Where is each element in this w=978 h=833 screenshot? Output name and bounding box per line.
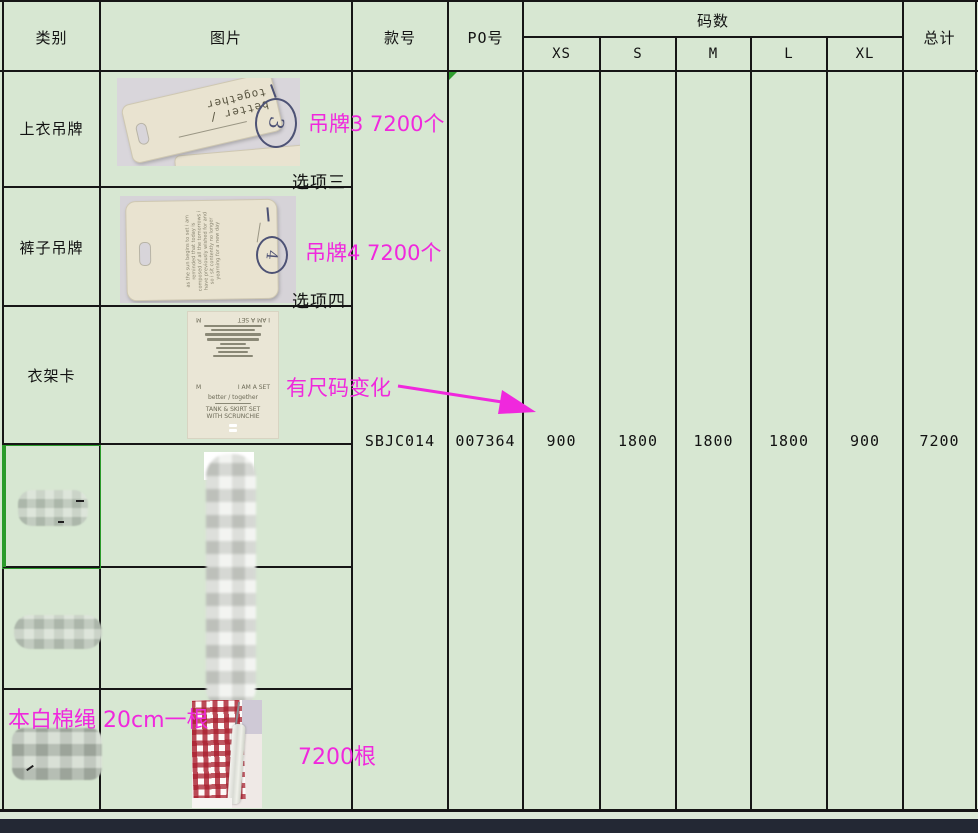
option-label-4: 选项四	[292, 287, 346, 312]
photo-redacted-strip[interactable]	[206, 454, 256, 710]
grid-line	[0, 0, 978, 2]
handwritten-circled-3: 3	[255, 98, 297, 148]
grid-line	[0, 809, 978, 812]
header-cell-sizes-group[interactable]: 码数	[524, 4, 902, 36]
data-cell-qty-m[interactable]: 1800	[677, 71, 750, 811]
grid-line	[975, 0, 977, 811]
grid-line	[2, 0, 4, 811]
grid-line	[447, 0, 449, 811]
header-cell-category[interactable]: 类别	[4, 4, 99, 70]
header-cell-total[interactable]: 总计	[904, 4, 975, 70]
header-cell-po-no[interactable]: PO号	[449, 4, 522, 70]
header-cell-size-s[interactable]: S	[601, 38, 675, 70]
bottom-dark-bar	[0, 819, 978, 833]
ink-speck	[58, 521, 64, 523]
annotation-pants-tag-qty[interactable]: 吊牌4 7200个	[305, 237, 441, 267]
tag-hole	[135, 122, 151, 146]
header-cell-style-no[interactable]: 款号	[353, 4, 447, 70]
tag-paragraph: as the sun begins to set i am reminded t…	[184, 209, 221, 294]
grid-line	[0, 70, 978, 72]
data-cell-qty-total[interactable]: 7200	[904, 71, 975, 811]
redacted-text-blob-row4	[18, 490, 88, 526]
category-cell-pants-tag[interactable]: 裤子吊牌	[4, 189, 99, 305]
script-line	[257, 223, 261, 243]
option-label-3: 选项三	[292, 168, 346, 193]
grid-line	[599, 36, 601, 811]
annotation-top-tag-qty[interactable]: 吊牌3 7200个	[308, 108, 444, 138]
grid-line	[675, 36, 677, 811]
sheet-bottom-strip	[0, 812, 978, 819]
annotation-rope-qty[interactable]: 7200根	[298, 739, 376, 771]
tag-hole	[139, 242, 151, 266]
photo-pants-hang-tag[interactable]: as the sun begins to set i am reminded t…	[120, 196, 296, 303]
grid-line	[750, 36, 752, 811]
photo-top-hang-tag[interactable]: better / together 3	[117, 78, 300, 166]
grid-line	[902, 0, 904, 811]
category-cell-top-tag[interactable]: 上衣吊牌	[4, 71, 99, 186]
header-cell-size-m[interactable]: M	[677, 38, 750, 70]
data-cell-qty-xs[interactable]: 900	[524, 71, 599, 811]
category-cell-hanger-card[interactable]: 衣架卡	[4, 308, 99, 443]
cell-error-indicator-triangle	[449, 72, 457, 80]
redacted-text-blob-row6	[12, 728, 102, 780]
header-cell-size-l[interactable]: L	[752, 38, 826, 70]
annotation-size-change[interactable]: 有尺码变化	[286, 372, 391, 402]
data-cell-qty-xl[interactable]: 900	[828, 71, 902, 811]
annotation-rope-label[interactable]: 本白棉绳 20cm一根	[8, 702, 209, 734]
photo-bottom-edge	[192, 798, 232, 808]
handwritten-circled-4: 4	[256, 236, 288, 274]
grid-line	[826, 36, 828, 811]
header-cell-image[interactable]: 图片	[101, 4, 351, 70]
grid-line	[522, 36, 904, 38]
data-cell-po-no[interactable]: 007364	[449, 71, 522, 811]
ink-speck	[76, 500, 84, 502]
ink-dash	[266, 207, 279, 222]
data-cell-qty-l[interactable]: 1800	[752, 71, 826, 811]
spreadsheet-view: 类别 图片 款号 PO号 码数 XS S M L XL 总计 上衣吊牌 裤子吊牌…	[0, 0, 978, 833]
header-cell-size-xl[interactable]: XL	[828, 38, 902, 70]
grid-line	[522, 0, 524, 811]
redacted-text-blob-row5	[14, 615, 102, 649]
header-cell-size-xs[interactable]: XS	[524, 38, 599, 70]
data-cell-qty-s[interactable]: 1800	[601, 71, 675, 811]
grid-line	[2, 688, 352, 690]
selected-cell-left-bar	[2, 445, 6, 567]
grid-line	[99, 0, 101, 811]
data-cell-style-no[interactable]: SBJC014	[353, 71, 447, 811]
photo-hanger-card[interactable]: I AM A SET M M I AM A SET better / toget…	[188, 312, 278, 438]
